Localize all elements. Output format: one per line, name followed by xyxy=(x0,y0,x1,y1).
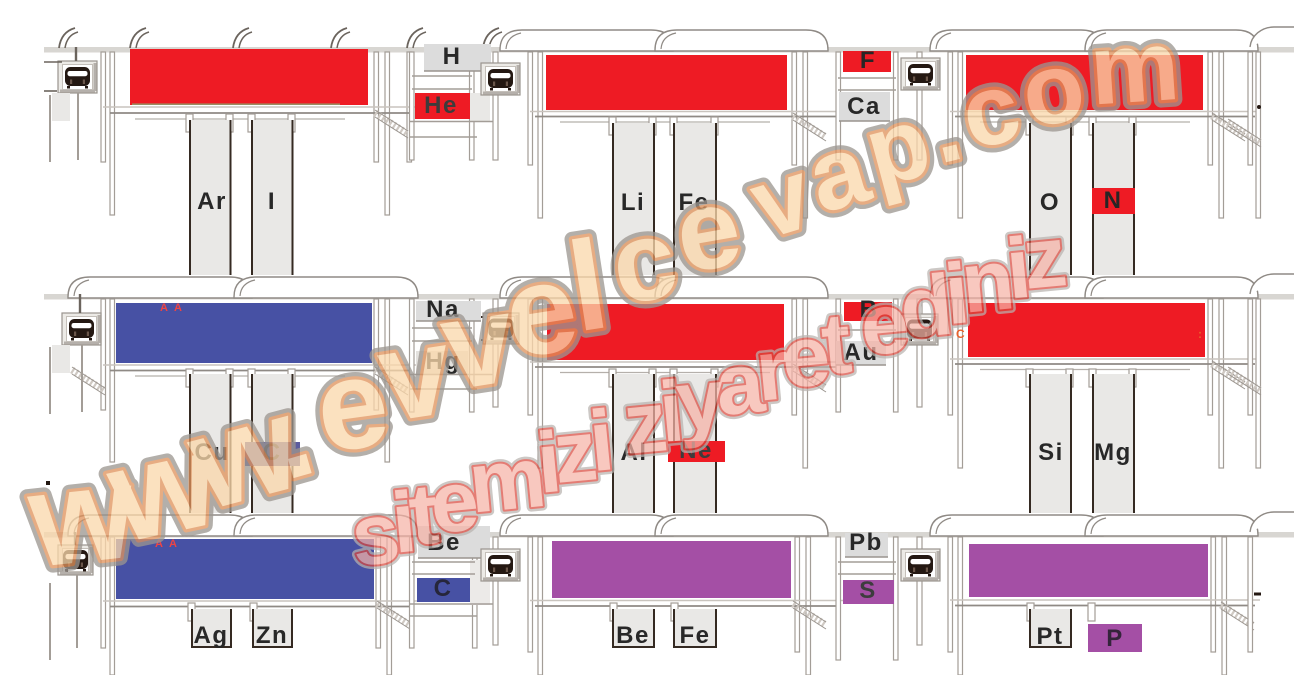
svg-text:N: N xyxy=(1104,187,1123,214)
svg-text:H: H xyxy=(443,43,462,70)
svg-text:He: He xyxy=(424,92,458,119)
svg-text:Pb: Pb xyxy=(849,529,883,556)
svg-text:Fe: Fe xyxy=(679,622,710,649)
svg-text:AA: AA xyxy=(160,302,188,314)
svg-text:Zn: Zn xyxy=(256,622,288,649)
svg-text:I: I xyxy=(268,188,276,215)
svg-text:Be: Be xyxy=(616,622,650,649)
svg-text:C: C xyxy=(434,575,453,602)
svg-text:P: P xyxy=(1106,625,1124,652)
svg-text:Ar: Ar xyxy=(197,188,227,215)
svg-text:Pt: Pt xyxy=(1037,623,1064,650)
svg-text::: : xyxy=(1198,327,1202,341)
svg-text:S: S xyxy=(859,577,877,604)
svg-text:Mg: Mg xyxy=(1094,439,1132,466)
svg-text:Ag: Ag xyxy=(194,622,229,649)
svg-text:F: F xyxy=(860,47,876,74)
svg-text:Si: Si xyxy=(1038,439,1064,466)
